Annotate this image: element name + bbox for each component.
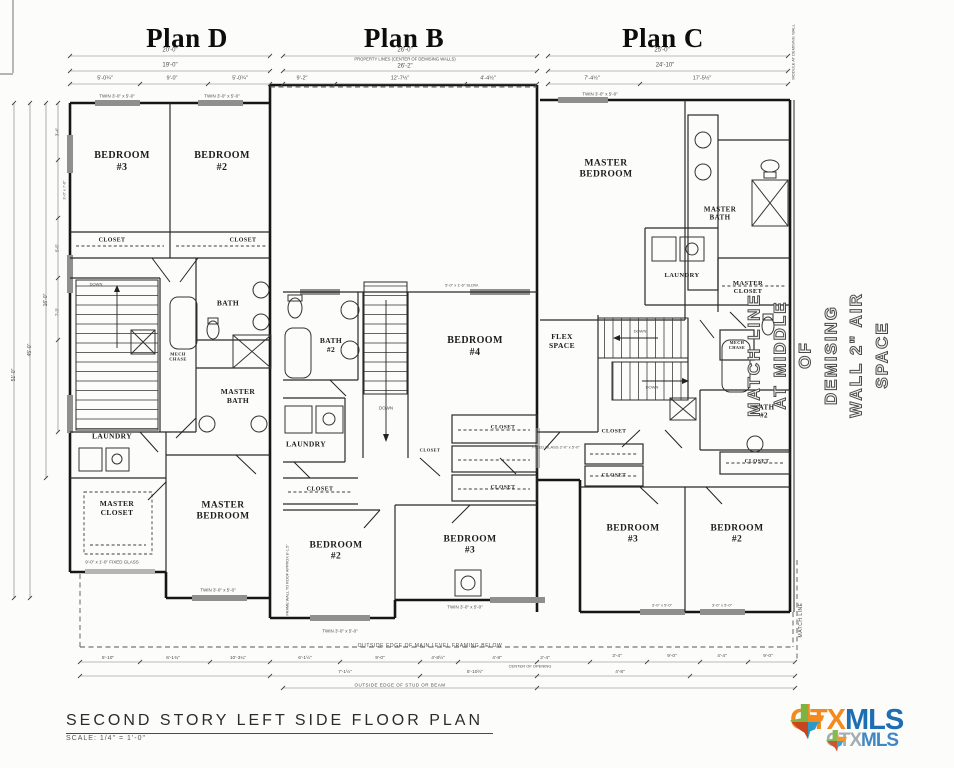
dim-b-row3b: 12'-7½" <box>391 76 410 83</box>
dim-left-4: 5'-5" <box>54 244 59 252</box>
dim-bottom-r2-1: 5'-10½" <box>467 670 483 676</box>
slider-label-b: 5'-0" x 1'-6" SLDW. <box>445 284 479 289</box>
dim-bottom-r1-2: 4'-8½" <box>431 656 445 662</box>
stair-label-c-down1: DOWN <box>634 330 647 335</box>
dim-c-row3b: 17'-5½" <box>693 76 712 83</box>
plan-d-stairs <box>76 280 158 430</box>
room-label-d-bedroom3: BEDROOM #3 <box>94 150 150 174</box>
room-label-d-closet1: CLOSET <box>99 237 126 244</box>
fixed-glass-label-d: 9'-0" x 1'-0" FIXED GLASS <box>85 559 138 564</box>
stair-label-d-down: DOWN <box>90 283 103 288</box>
room-label-b-bedroom4: BEDROOM #4 <box>447 335 503 359</box>
dim-bottom-d1: 6'-1¾" <box>166 656 180 662</box>
room-label-b-bedroom3: BEDROOM #3 <box>444 535 497 558</box>
sheet-title: SECOND STORY LEFT SIDE FLOOR PLAN <box>66 712 493 734</box>
room-label-c-closet2: CLOSET <box>602 473 627 480</box>
room-label-b-closet-r2: CLOSET <box>420 447 441 452</box>
window-label-c-bed2: 3'-0" x 5'-0" <box>712 604 732 609</box>
dim-bottom-c0: 3'-4" <box>612 654 622 660</box>
logo-watermark-mls: MLS <box>861 730 898 752</box>
dim-left-window: 3'-0" x 7'-6" <box>63 180 68 199</box>
room-label-d-bath: BATH <box>217 299 239 308</box>
dim-d-row3a: 5'-0¼" <box>97 76 113 83</box>
dim-left-3: 3'-4" <box>54 128 59 136</box>
dim-c-overall: 25'-0" <box>654 47 669 54</box>
match-line-annotation: MATCH LINE AT MIDDLE OF DEMISING WALL 2"… <box>742 287 895 423</box>
dim-bottom-d0: 5'-10" <box>102 656 114 662</box>
room-label-b-closet-r1: CLOSET <box>491 425 516 432</box>
dim-b-overall: 26'-0" <box>397 47 412 54</box>
room-label-d-bedroom2: BEDROOM #2 <box>194 150 250 174</box>
room-label-c-bedroom3: BEDROOM #3 <box>607 524 660 547</box>
dim-d-row3c: 5'-0¼" <box>232 76 248 83</box>
room-label-d-master-bath: MASTER BATH <box>221 387 256 405</box>
room-label-c-master-bedroom: MASTER BEDROOM <box>580 159 633 182</box>
outside-stud-note: OUTSIDE EDGE OF STUD OR BEAM <box>354 682 445 687</box>
sheet-border-fragment <box>0 0 13 74</box>
room-label-b-laundry: LAUNDRY <box>286 440 326 449</box>
dim-b-row3a: 9'-2" <box>297 76 308 83</box>
floorplan-sheet: Plan D Plan B Plan C 20'-0" 19'-0" 5'-0¼… <box>0 0 954 768</box>
room-label-c-laundry: LAUNDRY <box>664 272 699 280</box>
room-label-c-closet1: CLOSET <box>602 429 627 436</box>
window-label-d-bottom: TWIN 3'-0" x 5'-0" <box>200 587 235 592</box>
window-label-b-bed3: TWIN 3'-0" x 5'-0" <box>447 604 482 609</box>
plan-b-doors <box>294 380 516 528</box>
window-label-b-bed2: TWIN 3'-0" x 5'-0" <box>322 628 357 633</box>
dim-left-1: 45'-0" <box>27 344 33 357</box>
fixed-glass-label-c: FIXED GLASS 2'-0" x 5'-0" <box>532 446 580 451</box>
ctxmls-logo: CTXMLS CTXMLS <box>790 704 948 760</box>
dim-left-5: 7'-3" <box>54 308 59 316</box>
dim-bottom-r2-0: 7'-1½" <box>338 670 352 676</box>
room-label-d-closet2: CLOSET <box>230 237 257 244</box>
stair-label-b-down: DOWN <box>379 405 393 410</box>
dim-b-row2: 26'-2" <box>397 63 412 70</box>
dim-bottom-c1: 9'-0" <box>667 654 677 660</box>
dim-bottom-d2: 10'-3¼" <box>230 656 246 662</box>
window-label-d-top-right: TWIN 3'-0" x 5'-0" <box>204 93 239 98</box>
dim-d-row2: 19'-0" <box>162 62 177 69</box>
room-label-b-closet-r3: CLOSET <box>491 485 516 492</box>
room-label-c-closet3: CLOSET <box>745 459 770 466</box>
room-label-d-master-bedroom: MASTER BEDROOM <box>197 501 250 524</box>
room-label-c-flex-space: FLEX SPACE <box>549 332 575 350</box>
dim-c-row2: 24'-10" <box>656 62 675 69</box>
sheet-scale: SCALE: 1/4" = 1'-0" <box>66 735 146 742</box>
room-label-c-master-bath: MASTER BATH <box>704 206 736 223</box>
dim-b-row3c: 4'-4½" <box>480 76 496 83</box>
window-label-d-top-left: TWIN 3'-0" x 5'-0" <box>99 93 134 98</box>
window-label-c-bed3: 3'-0" x 5'-0" <box>652 604 672 609</box>
room-label-d-laundry: LAUNDRY <box>92 432 132 441</box>
plan-b-stairs <box>364 282 407 442</box>
stair-label-c-down2: DOWN <box>646 386 659 391</box>
frame-wall-note: FRAME WALL TO ROOF APPROX 8'-1.5" <box>286 544 291 615</box>
match-line-small: MATCH LINE <box>798 603 804 638</box>
room-label-b-bedroom2: BEDROOM #2 <box>310 541 363 564</box>
room-label-b-closet-left: CLOSET <box>307 486 334 493</box>
dashed-reference-lines <box>80 87 797 660</box>
room-label-d-mech-chase: MECH CHASE <box>169 352 187 363</box>
property-line-note: PROPERTY LINES (CENTER OF DEMISING WALLS… <box>354 56 455 61</box>
dim-bottom-r2-2: 4'-8" <box>615 670 625 676</box>
window-label-c-top: TWIN 3'-0" x 5'-0" <box>582 91 617 96</box>
plan-d-title: Plan D <box>146 22 228 54</box>
dim-left-0: 51'-0" <box>11 369 17 382</box>
texas-icon-small <box>826 730 848 752</box>
room-label-b-bath2: BATH #2 <box>320 336 342 354</box>
dim-d-overall: 20'-0" <box>162 47 177 54</box>
dim-bottom-c3: 9'-0" <box>763 654 773 660</box>
center-of-opening-note: CENTER OF OPENING <box>509 665 552 670</box>
room-label-c-bedroom2: BEDROOM #2 <box>711 524 764 547</box>
dim-d-row3b: 9'-0" <box>167 76 178 83</box>
texas-icon <box>790 704 826 740</box>
dim-bottom-r1-3: 4'-8" <box>492 656 502 662</box>
dim-c-row3a: 7'-4½" <box>584 76 600 83</box>
dim-bottom-c2: 4'-4" <box>717 654 727 660</box>
ctxmls-logo-watermark: CTXMLS <box>826 730 898 752</box>
dim-bottom-r1-0: 6'-1½" <box>298 656 312 662</box>
module-note: MODULE AT DEMISING WALL <box>792 24 797 80</box>
dim-left-2: 16'-0" <box>43 294 49 307</box>
dim-bottom-r1-4: 2'-4" <box>540 656 550 662</box>
dim-bottom-r1-1: 9'-0" <box>375 656 385 662</box>
outside-main-level-note: OUTSIDE EDGE OF MAIN LEVEL FRAMING BELOW <box>358 643 503 649</box>
room-label-d-master-closet: MASTER CLOSET <box>100 499 135 517</box>
